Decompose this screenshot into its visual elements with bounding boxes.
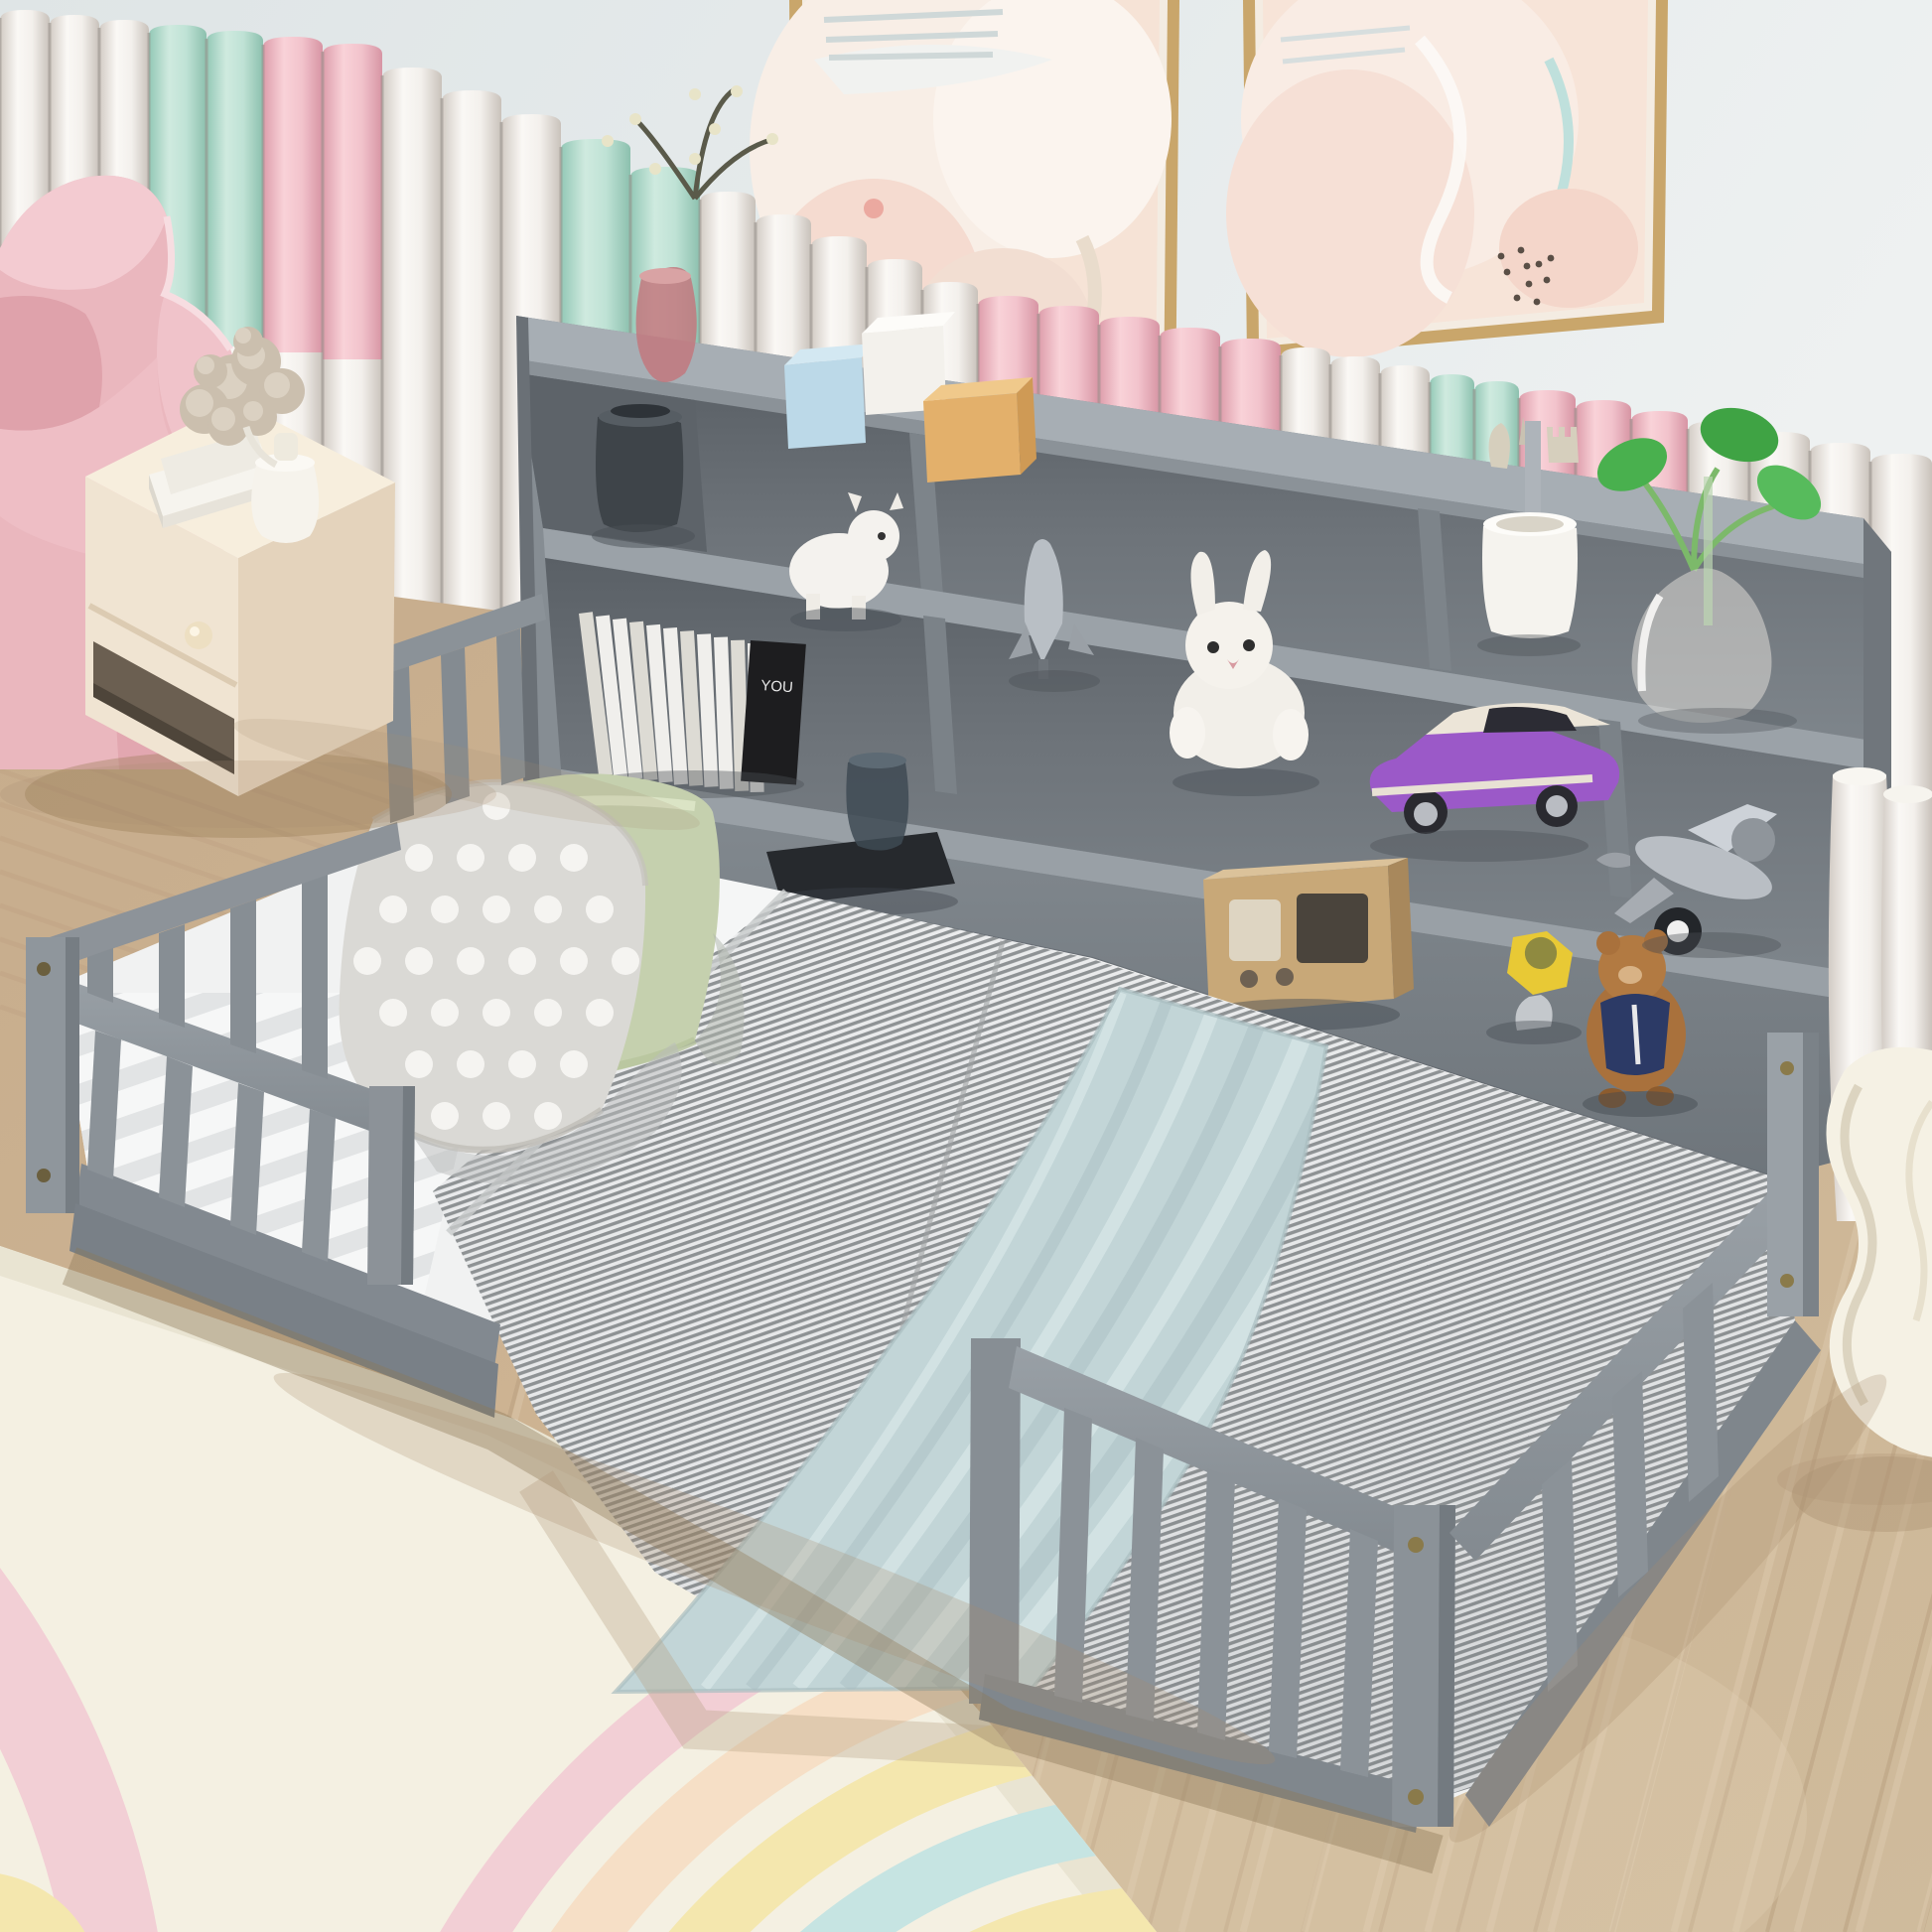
- svg-text:YOU: YOU: [760, 677, 794, 696]
